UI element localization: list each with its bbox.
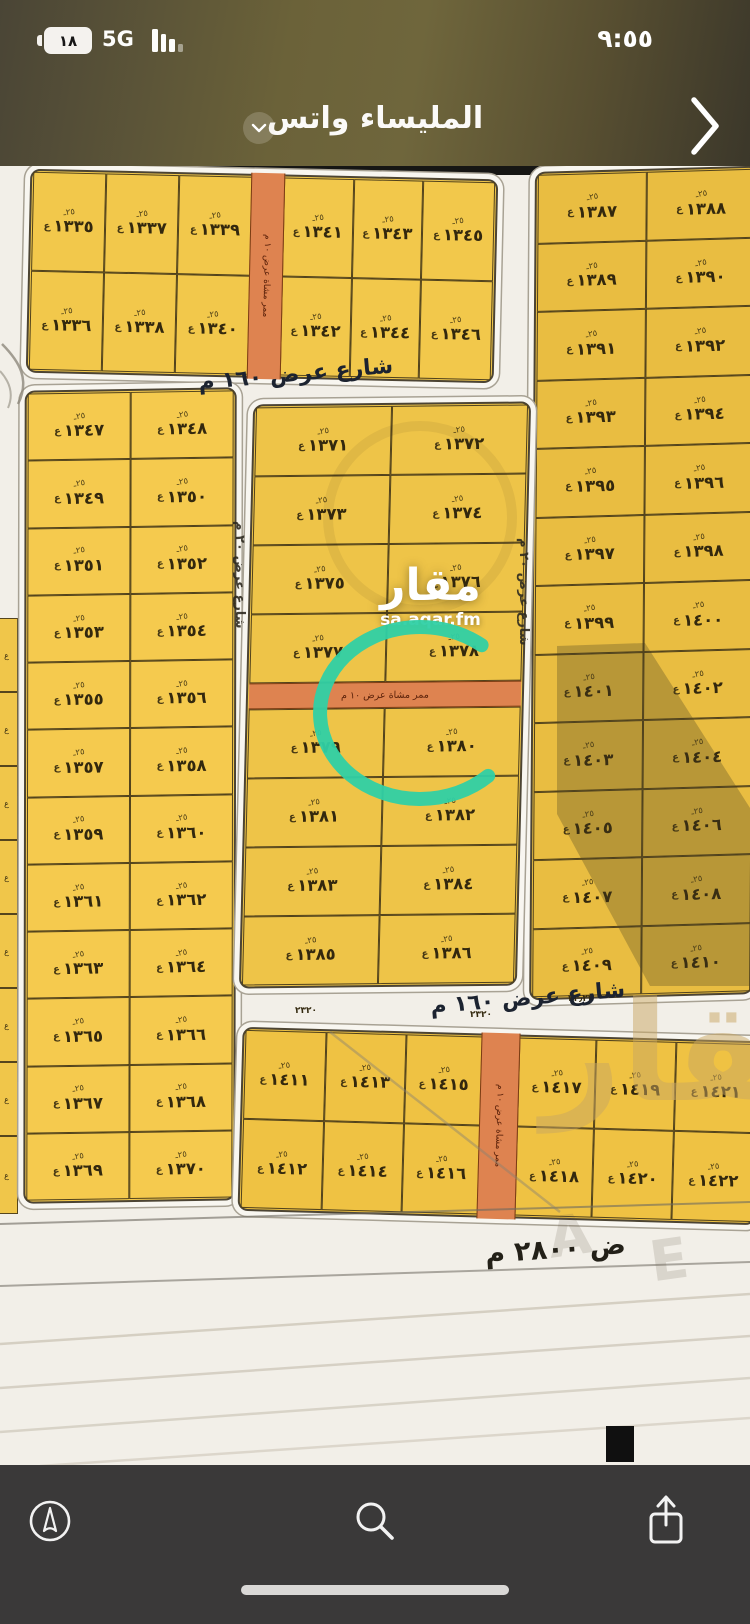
plot-١٣٩٥: ٢٥ـع١٣٩٥: [536, 446, 645, 518]
plot-١٣٨٨: ٢٥ـع١٣٨٨: [646, 169, 750, 241]
block-east: ٢٥ـع١٣٨٧٢٥ـع١٣٨٨٢٥ـع١٣٨٩٢٥ـع١٣٩٠٢٥ـع١٣٩١…: [529, 166, 750, 1000]
plot-١٣٧٢: ٢٥ـع١٣٧٢: [390, 404, 528, 474]
plot-١٣٨٦: ٢٥ـع١٣٨٦: [378, 914, 516, 984]
plot-١٣٨٩: ٢٥ـع١٣٨٩: [537, 240, 646, 312]
block-north: ٢٥ـع١٣٣٥٢٥ـع١٣٣٧٢٥ـع١٣٣٩٢٥ـع١٣٤١٢٥ـع١٣٤٣…: [26, 169, 499, 384]
edge-plot-fragment: ع: [0, 766, 18, 840]
plot-١٤٠٤: ٢٥ـع١٤٠٤: [643, 717, 750, 789]
pedestrian-lane: ممر مشاة عرض ١٠ م: [247, 173, 286, 380]
plot-١٣٩١: ٢٥ـع١٣٩١: [536, 309, 645, 381]
plot-١٣٥٢: ٢٥ـع١٣٥٢: [130, 525, 233, 594]
edge-plot-fragment: ع: [0, 1062, 18, 1136]
plot-١٣٩٢: ٢٥ـع١٣٩٢: [645, 306, 750, 378]
plot-١٣٦٣: ٢٥ـع١٣٦٣: [27, 930, 130, 999]
plot-١٤٠٧: ٢٥ـع١٤٠٧: [533, 857, 642, 929]
home-indicator[interactable]: [241, 1585, 509, 1595]
plot-١٣٥٧: ٢٥ـع١٣٥٧: [27, 728, 130, 797]
plot-١٣٥٨: ٢٥ـع١٣٥٨: [130, 727, 233, 796]
plot-١٣٥١: ٢٥ـع١٣٥١: [27, 526, 130, 595]
plot-١٣٦٤: ٢٥ـع١٣٦٤: [130, 928, 233, 997]
plot-١٣٧٤: ٢٥ـع١٣٧٤: [389, 474, 527, 544]
plot-١٣٣٧: ٢٥ـع١٣٣٧: [104, 173, 179, 274]
plot-١٣٤٠: ٢٥ـع١٣٤٠: [175, 274, 250, 375]
bottom-toolbar: [0, 1465, 750, 1624]
plot-١٣٤٩: ٢٥ـع١٣٤٩: [27, 459, 130, 528]
search-button[interactable]: [347, 1493, 403, 1549]
plot-١٣٧٠: ٢٥ـع١٣٧٠: [129, 1130, 232, 1199]
map-image[interactable]: ٢٥ـع١٣٣٥٢٥ـع١٣٣٧٢٥ـع١٣٣٩٢٥ـع١٣٤١٢٥ـع١٣٤٣…: [0, 166, 750, 1465]
plot-١٣٤٧: ٢٥ـع١٣٤٧: [28, 392, 131, 461]
plot-١٣٩٠: ٢٥ـع١٣٩٠: [646, 237, 750, 309]
plot-١٣٨٧: ٢٥ـع١٣٨٧: [537, 172, 646, 244]
plot-١٣٦٩: ٢٥ـع١٣٦٩: [26, 1132, 129, 1201]
edge-plot-fragment: ع: [0, 914, 18, 988]
plot-١٣٩٦: ٢٥ـع١٣٩٦: [644, 443, 750, 515]
plot-١٤٠٦: ٢٥ـع١٤٠٦: [642, 786, 750, 858]
back-chevron-icon[interactable]: [686, 94, 724, 158]
plot-١٣٨٠: ٢٥ـع١٣٨٠: [383, 707, 521, 777]
plot-١٤١١: ٢٥ـع١٤١١: [243, 1030, 326, 1121]
plot-١٤٠٢: ٢٥ـع١٤٠٢: [643, 648, 750, 720]
plot-١٤١٤: ٢٥ـع١٤١٤: [321, 1121, 404, 1212]
plot-١٣٦٦: ٢٥ـع١٣٦٦: [130, 996, 233, 1065]
plot-١٣٥٣: ٢٥ـع١٣٥٣: [27, 594, 130, 663]
plot-١٣٩٣: ٢٥ـع١٣٩٣: [536, 377, 645, 449]
map-edge-mark: [606, 1426, 634, 1462]
plot-١٣٧٣: ٢٥ـع١٣٧٣: [253, 475, 391, 545]
pedestrian-lane: ممر مشاة عرض ١٠ م: [477, 1032, 521, 1219]
plot-١٣٦٥: ٢٥ـع١٣٦٥: [27, 997, 130, 1066]
plot-١٣٦٠: ٢٥ـع١٣٦٠: [130, 794, 233, 863]
plot-١٤٢٢: ٢٥ـع١٤٢٢: [672, 1131, 750, 1222]
street-label-left-vertical: شارع عرض ٢٠ م: [232, 521, 247, 628]
plot-١٤١٥: ٢٥ـع١٤١٥: [404, 1034, 483, 1125]
watermark-site-text: sa.aqar.fm: [348, 610, 513, 630]
plot-١٣٩٧: ٢٥ـع١٣٩٧: [535, 514, 644, 586]
plot-١٣٣٥: ٢٥ـع١٣٣٥: [31, 172, 106, 273]
location-tracking-button[interactable]: [22, 1493, 78, 1549]
plot-١٣٤٦: ٢٥ـع١٣٤٦: [419, 280, 493, 381]
plot-١٣٥٤: ٢٥ـع١٣٥٤: [130, 592, 233, 661]
edge-plot-fragment: ع: [0, 618, 18, 692]
edge-plot-fragment: ع: [0, 840, 18, 914]
plot-١٣٥٥: ٢٥ـع١٣٥٥: [27, 661, 130, 730]
plot-١٤٠٨: ٢٥ـع١٤٠٨: [642, 854, 750, 926]
plot-١٣٨١: ٢٥ـع١٣٨١: [245, 777, 383, 847]
network-label: 5G: [102, 27, 134, 51]
plot-١٤٢٠: ٢٥ـع١٤٢٠: [591, 1129, 674, 1220]
dimension-micro-label: ٢٣٢٠: [295, 1006, 317, 1016]
plot-١٣٣٨: ٢٥ـع١٣٣٨: [102, 272, 177, 373]
status-and-header: ١٨ 5G ٩:٥٥ المليساء واتس: [0, 0, 750, 166]
plot-١٤١٢: ٢٥ـع١٤١٢: [241, 1119, 324, 1210]
plot-١٣٩٩: ٢٥ـع١٣٩٩: [535, 583, 644, 655]
plot-١٣٥٩: ٢٥ـع١٣٥٩: [27, 796, 130, 865]
plot-١٤١٣: ٢٥ـع١٤١٣: [324, 1032, 407, 1123]
watermark-brand: مقار sa.aqar.fm: [348, 564, 513, 630]
plot-١٤٠٠: ٢٥ـع١٤٠٠: [644, 580, 750, 652]
plot-١٣٥٠: ٢٥ـع١٣٥٠: [130, 458, 233, 527]
plot-١٣٨٢: ٢٥ـع١٣٨٢: [381, 776, 519, 846]
share-button[interactable]: [638, 1493, 694, 1549]
clock: ٩:٥٥: [597, 24, 653, 53]
plot-١٣٩٨: ٢٥ـع١٣٩٨: [644, 511, 750, 583]
plot-١٣٨٤: ٢٥ـع١٣٨٤: [380, 845, 518, 915]
edge-plot-fragment: ع: [0, 692, 18, 766]
plot-١٣٩٤: ٢٥ـع١٣٩٤: [645, 374, 750, 446]
plot-١٣٨٥: ٢٥ـع١٣٨٥: [242, 915, 380, 985]
street-label-right-vertical: شارع عرض ٢٠ م: [516, 538, 531, 645]
plot-١٤٠٥: ٢٥ـع١٤٠٥: [533, 789, 642, 861]
street-label-bottom-partial: ض ٢٨٠٠ م: [484, 1229, 627, 1270]
plot-١٣٣٩: ٢٥ـع١٣٣٩: [177, 175, 252, 276]
edge-plot-fragment: ع: [0, 988, 18, 1062]
pedestrian-lane: ممر مشاة عرض ١٠ م: [249, 681, 522, 710]
plot-١٣٤٥: ٢٥ـع١٣٤٥: [421, 181, 495, 282]
plot-١٣٦٧: ٢٥ـع١٣٦٧: [26, 1065, 129, 1134]
edge-plot-fragment: ع: [0, 1136, 18, 1214]
battery-icon: ١٨: [44, 27, 92, 54]
plot-١٣٥٦: ٢٥ـع١٣٥٦: [130, 659, 233, 728]
plot-١٤١٦: ٢٥ـع١٤١٦: [402, 1123, 481, 1214]
page-title[interactable]: المليساء واتس: [0, 101, 750, 136]
block-west: ٢٥ـع١٣٤٧٢٥ـع١٣٤٨٢٥ـع١٣٤٩٢٥ـع١٣٥٠٢٥ـع١٣٥١…: [23, 387, 236, 1203]
plot-١٣٣٦: ٢٥ـع١٣٣٦: [29, 271, 104, 372]
plot-١٤٠٣: ٢٥ـع١٤٠٣: [534, 720, 643, 792]
plot-١٣٤١: ٢٥ـع١٣٤١: [282, 177, 354, 278]
plot-١٣٦١: ٢٥ـع١٣٦١: [27, 863, 130, 932]
watermark-ghost-letter: E: [646, 1226, 693, 1296]
signal-bars-icon: [152, 28, 183, 52]
plot-١٣٧١: ٢٥ـع١٣٧١: [254, 406, 392, 476]
plot-١٣٤٨: ٢٥ـع١٣٤٨: [131, 390, 234, 459]
plot-١٣٧٩: ٢٥ـع١٣٧٩: [247, 708, 385, 778]
plot-١٣٨٣: ٢٥ـع١٣٨٣: [244, 846, 382, 916]
plot-١٤٠١: ٢٥ـع١٤٠١: [534, 652, 643, 724]
plot-١٣٤٣: ٢٥ـع١٣٤٣: [352, 179, 424, 280]
chevron-down-icon[interactable]: [243, 112, 275, 144]
plot-١٣٦٨: ٢٥ـع١٣٦٨: [129, 1063, 232, 1132]
plot-١٣٦٢: ٢٥ـع١٣٦٢: [130, 861, 233, 930]
watermark-brand-text: مقار: [348, 564, 513, 608]
block-center: ٢٥ـع١٣٧١٢٥ـع١٣٧٢٢٥ـع١٣٧٣٢٥ـع١٣٧٤٢٥ـع١٣٧٥…: [239, 401, 531, 988]
